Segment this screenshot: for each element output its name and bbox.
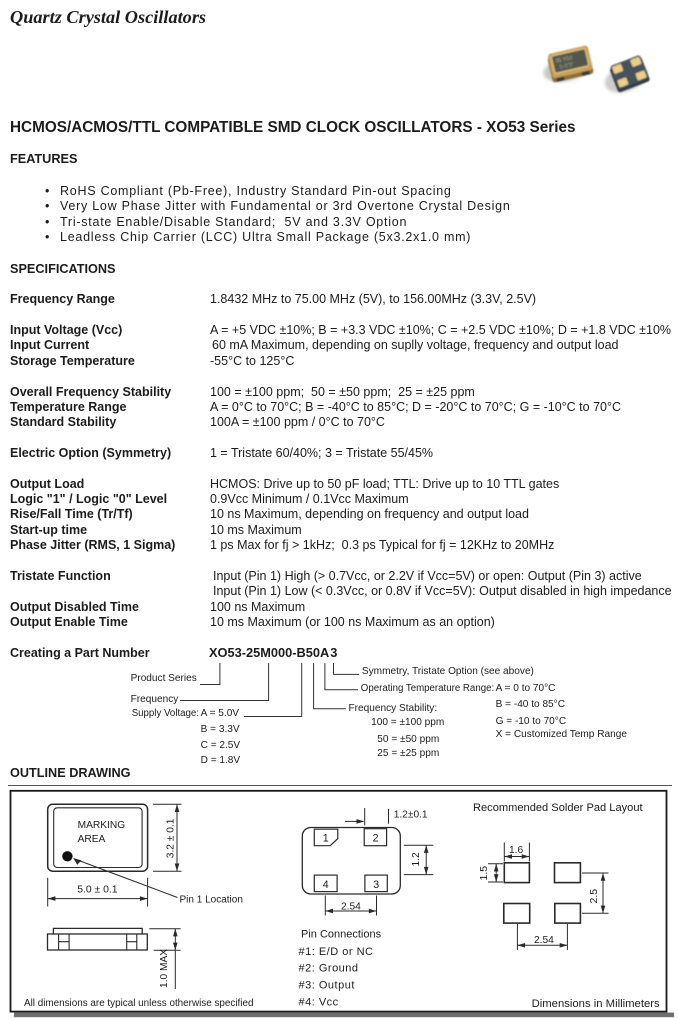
svg-text:All dimensions are typical unl: All dimensions are typical unless otherw… bbox=[24, 998, 253, 1009]
svg-text:#4: Vcc: #4: Vcc bbox=[299, 996, 339, 1008]
svg-text:1.5: 1.5 bbox=[478, 866, 490, 881]
svg-text:1: 1 bbox=[323, 833, 329, 845]
svg-text:#2: Ground: #2: Ground bbox=[299, 963, 359, 975]
svg-text:Dimensions in Millimeters: Dimensions in Millimeters bbox=[532, 998, 660, 1010]
svg-text:1.6: 1.6 bbox=[509, 845, 523, 856]
svg-text:2.54: 2.54 bbox=[534, 935, 554, 946]
svg-text:3.2 ± 0.1: 3.2 ± 0.1 bbox=[165, 818, 176, 858]
svg-text:4: 4 bbox=[323, 879, 329, 891]
svg-text:1.0 MAX: 1.0 MAX bbox=[159, 949, 170, 988]
svg-text:AREA: AREA bbox=[78, 834, 106, 845]
svg-text:2.5: 2.5 bbox=[588, 889, 600, 904]
svg-text:Pin 1 Location: Pin 1 Location bbox=[180, 895, 243, 906]
svg-text:Recommended Solder Pad Layout: Recommended Solder Pad Layout bbox=[473, 802, 643, 814]
svg-text:3: 3 bbox=[373, 879, 379, 891]
svg-text:2.54: 2.54 bbox=[341, 901, 361, 912]
svg-text:2: 2 bbox=[373, 833, 379, 845]
svg-text:#1: E/D or NC: #1: E/D or NC bbox=[299, 946, 374, 958]
svg-text:MARKING: MARKING bbox=[78, 820, 126, 831]
svg-text:5.0 ± 0.1: 5.0 ± 0.1 bbox=[77, 885, 118, 896]
svg-text:1.2: 1.2 bbox=[411, 852, 422, 866]
svg-text:1.2±0.1: 1.2±0.1 bbox=[394, 810, 428, 821]
svg-text:Pin Connections: Pin Connections bbox=[301, 928, 382, 940]
svg-text:#3: Output: #3: Output bbox=[299, 980, 355, 992]
